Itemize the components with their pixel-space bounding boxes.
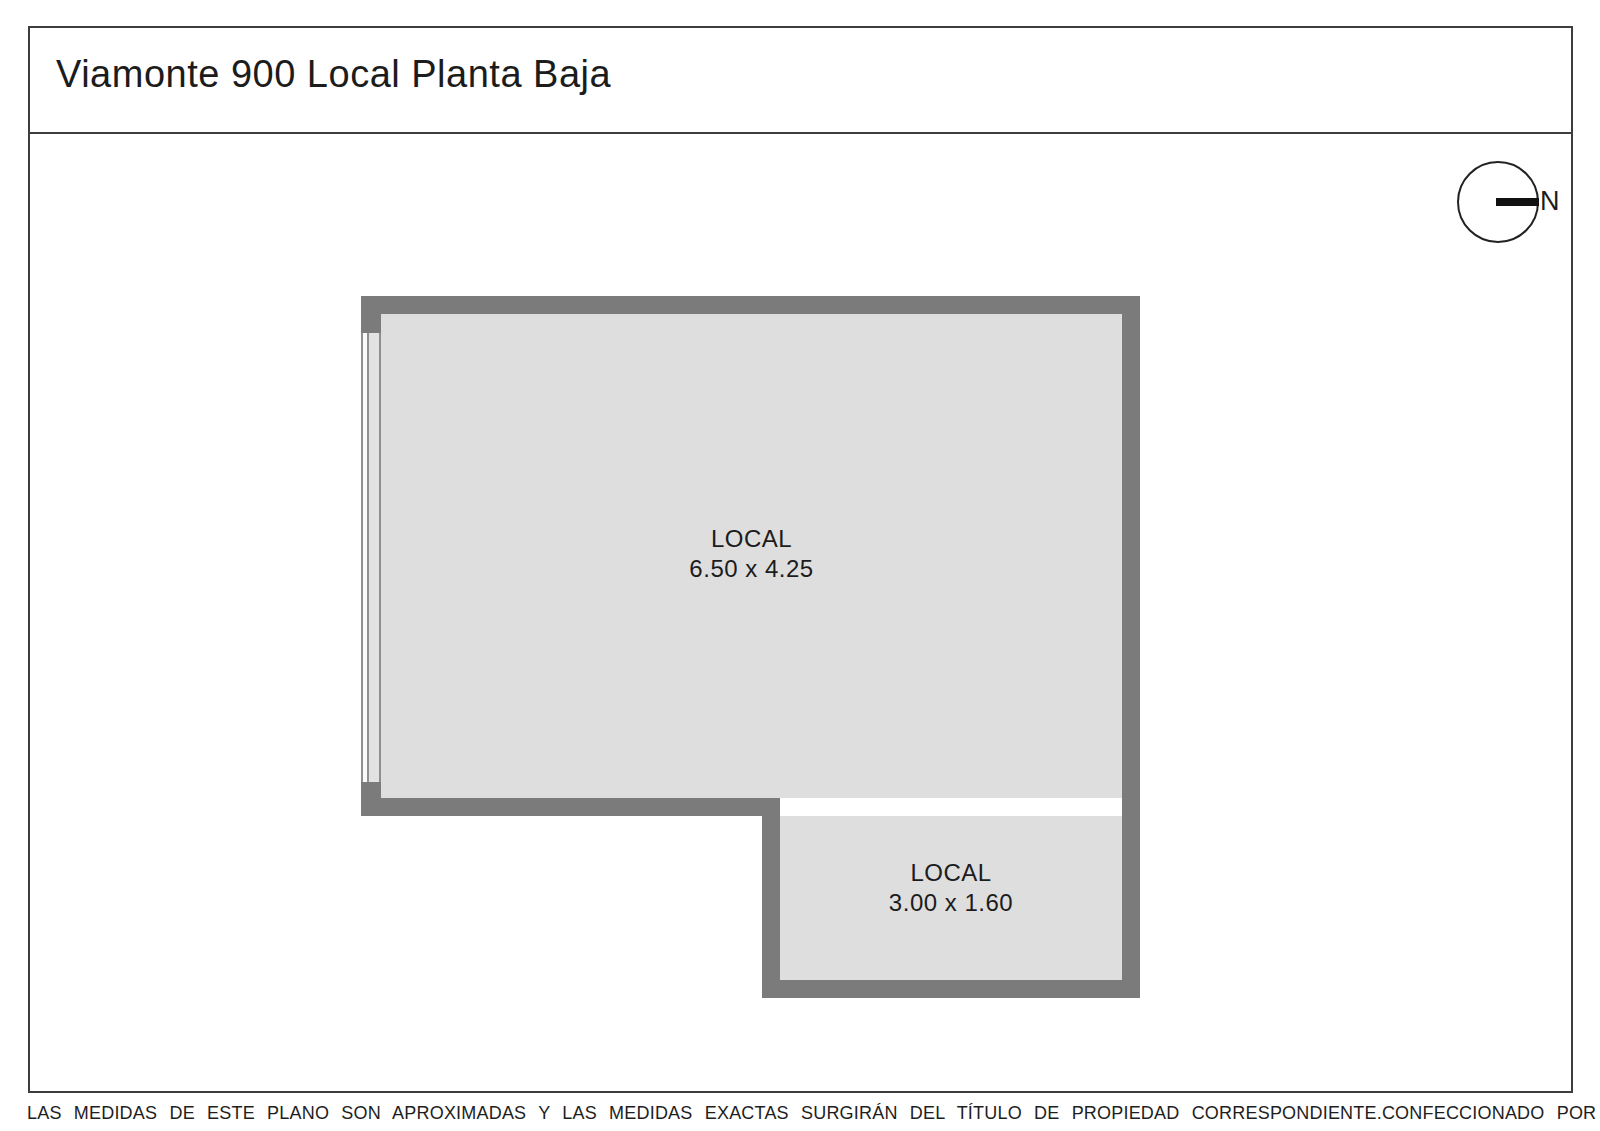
wall-bottom-lower-room <box>762 980 1140 998</box>
compass-needle-icon <box>1496 198 1539 206</box>
wall-top <box>361 296 1140 314</box>
window-pane <box>369 333 379 782</box>
wall-notch-left-of-lower-room <box>762 816 780 998</box>
footer: LAS MEDIDAS DE ESTE PLANO SON APROXIMADA… <box>27 1103 1546 1124</box>
room-name: LOCAL <box>381 524 1122 554</box>
room-dimensions: 3.00 x 1.60 <box>780 888 1122 918</box>
window-pane-divider <box>367 333 369 782</box>
room-label-lower: LOCAL 3.00 x 1.60 <box>780 858 1122 918</box>
north-label: N <box>1540 186 1560 217</box>
storefront-window <box>361 333 381 782</box>
room-name: LOCAL <box>780 858 1122 888</box>
footer-disclaimer: LAS MEDIDAS DE ESTE PLANO SON APROXIMADA… <box>27 1103 1382 1124</box>
wall-right <box>1122 296 1140 998</box>
plan-sheet: Viamonte 900 Local Planta Baja N LOCAL 6… <box>0 0 1600 1131</box>
window-jamb-top <box>361 296 381 333</box>
window-jamb-bottom <box>361 782 381 798</box>
room-label-main: LOCAL 6.50 x 4.25 <box>381 524 1122 584</box>
page-title: Viamonte 900 Local Planta Baja <box>56 53 611 96</box>
room-dimensions: 6.50 x 4.25 <box>381 554 1122 584</box>
title-divider <box>28 132 1573 134</box>
wall-bottom-main-room <box>361 798 780 816</box>
footer-credit: CONFECCIONADO POR ESTUDIO NARTEX <box>1382 1103 1600 1124</box>
